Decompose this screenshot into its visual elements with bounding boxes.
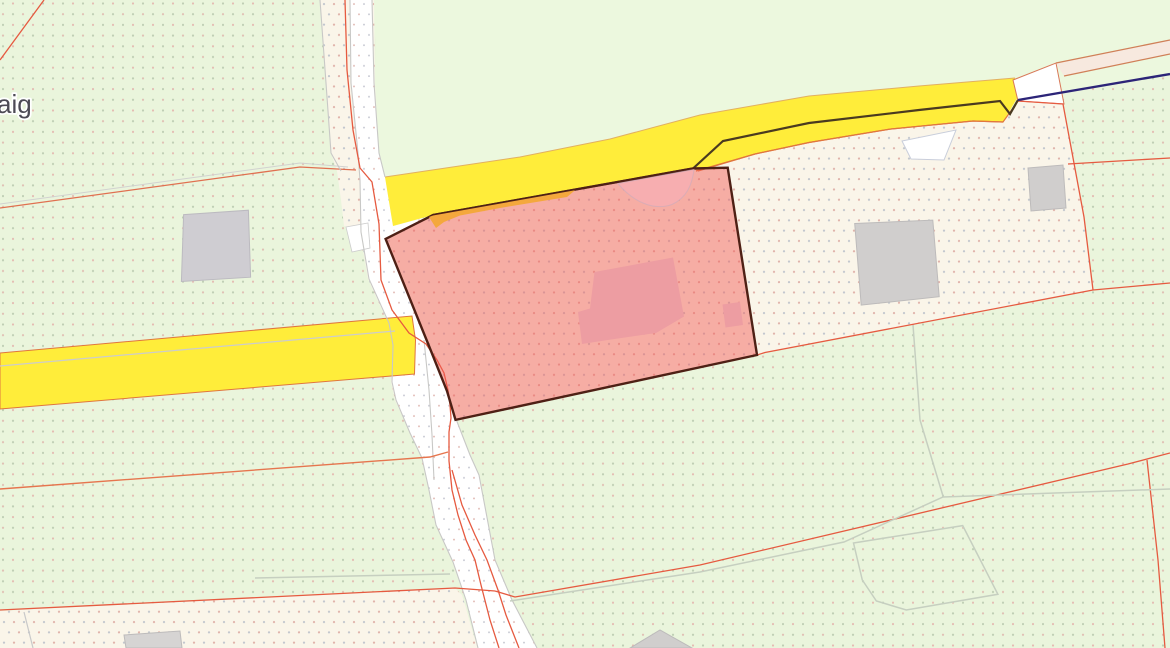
svg-text:aig: aig — [0, 89, 32, 119]
